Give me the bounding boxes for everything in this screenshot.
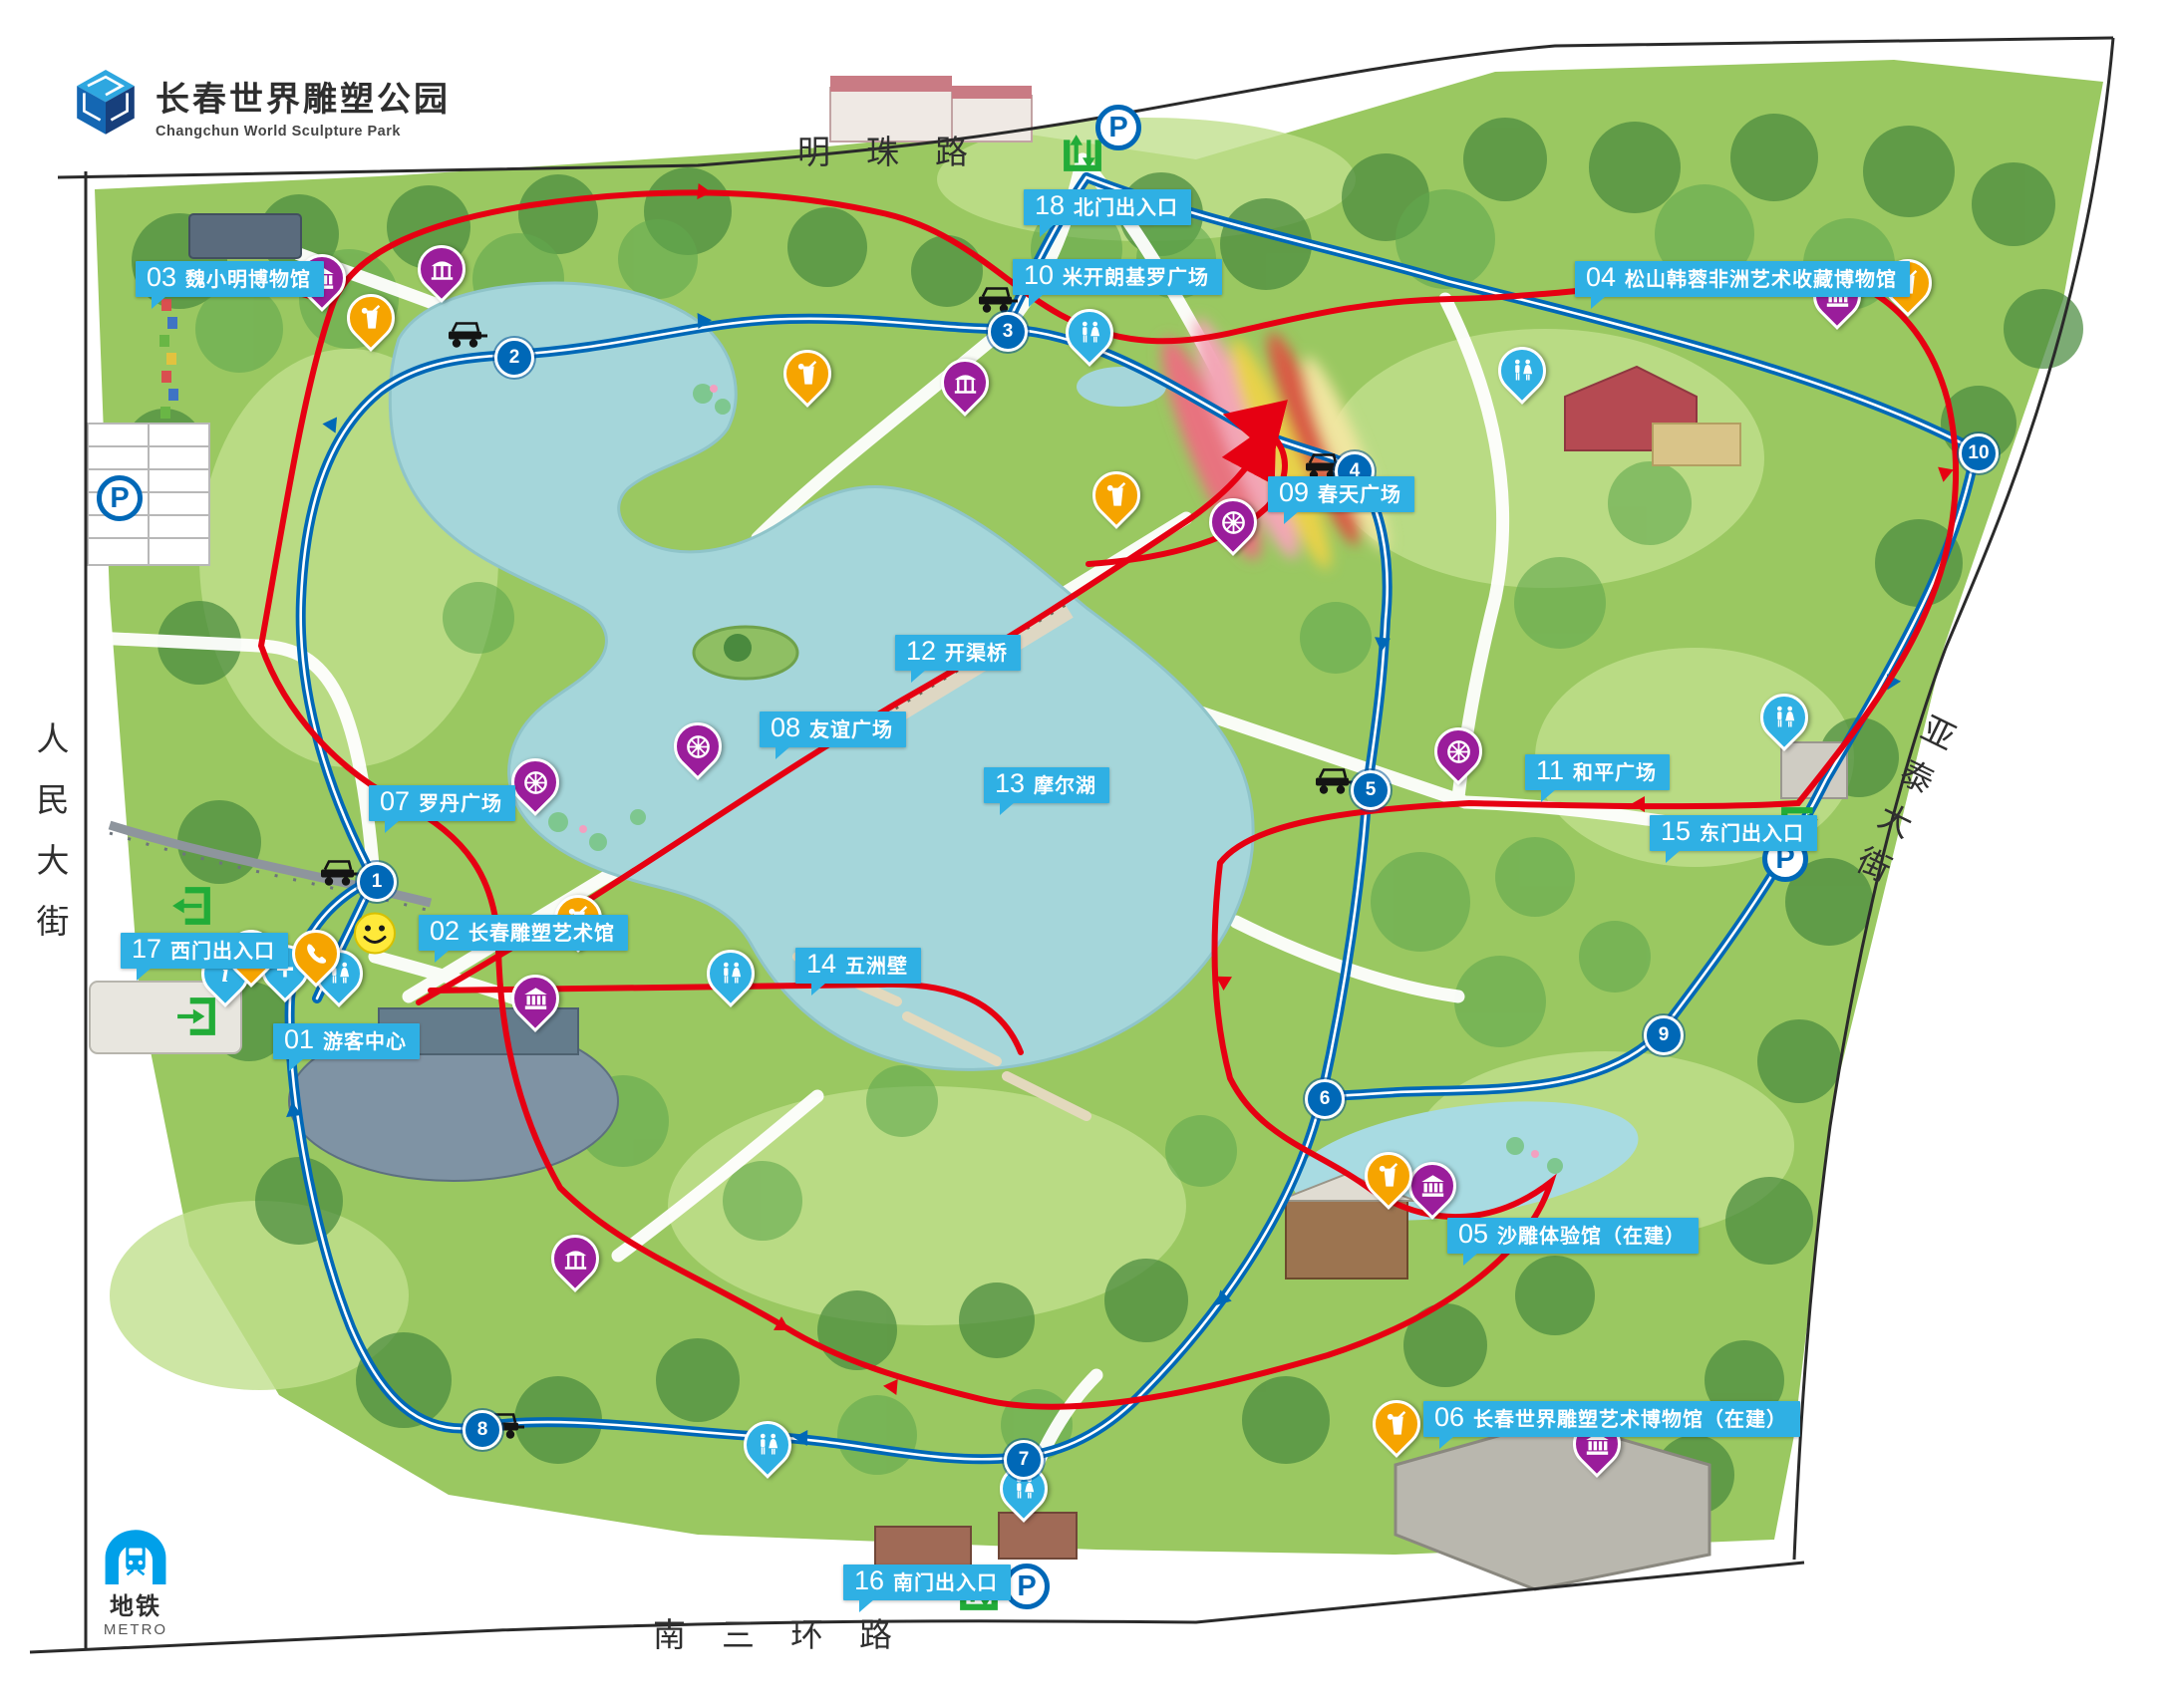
label-tail [1463,1253,1478,1266]
location-name: 西门出入口 [170,935,275,964]
shuttle-cart-icon [444,321,489,354]
pin-body [337,284,405,352]
toilet-icon [710,953,752,995]
location-number: 05 [1458,1220,1488,1248]
location-number: 17 [132,935,161,963]
pin-body [1083,461,1150,529]
road-label-renmin: 人民大街 [26,721,74,965]
park-logo: 长春世界雕塑公园 Changchun World Sculpture Park [70,66,451,145]
location-number: 18 [1035,191,1065,219]
shuttle-stop-5[interactable]: 5 [1351,770,1391,810]
pin-body [1199,488,1267,556]
sculpture-icon [677,725,719,767]
location-name: 春天广场 [1318,478,1401,507]
location-label-07[interactable]: 07罗丹广场 [369,785,515,821]
location-number: 04 [1586,263,1616,291]
location-number: 08 [771,713,800,741]
label-tail [1439,1436,1454,1449]
location-number: 06 [1434,1403,1464,1431]
shuttle-stop-2[interactable]: 2 [494,338,534,378]
shuttle-stop-6[interactable]: 6 [1305,1079,1345,1119]
pin-body [1488,337,1556,405]
location-name: 五洲壁 [845,950,908,979]
toilet-icon [1763,697,1805,738]
location-name: 沙雕体验馆（在建） [1497,1220,1686,1249]
label-tail [1029,294,1044,307]
logo-title-en: Changchun World Sculpture Park [155,124,451,140]
location-label-02[interactable]: 02长春雕塑艺术馆 [419,915,628,951]
location-label-14[interactable]: 14五洲壁 [795,948,921,984]
pin-body [697,940,765,1007]
location-number: 09 [1279,478,1309,506]
location-number: 02 [430,917,460,945]
label-tail [1040,224,1055,237]
location-label-10[interactable]: 10米开朗基罗广场 [1013,259,1222,295]
location-name: 东门出入口 [1700,817,1804,846]
shuttle-stop-9[interactable]: 9 [1644,1015,1684,1055]
label-tail [435,950,450,963]
drink-icon [1095,474,1137,516]
drink-icon [350,297,392,339]
label-tail [1541,789,1556,802]
location-label-08[interactable]: 08友谊广场 [760,712,906,747]
location-name: 米开朗基罗广场 [1063,261,1209,290]
location-label-12[interactable]: 12开渠桥 [895,635,1021,671]
gate-exit-left-icon[interactable] [170,885,212,927]
label-tail [385,820,400,833]
toilet-icon [1501,350,1543,392]
smiley-face-icon [353,912,397,961]
label-tail [1000,802,1015,815]
location-number: 11 [1536,756,1564,784]
location-label-15[interactable]: 15东门出入口 [1650,815,1817,851]
pin-body [408,235,475,303]
pavilion-icon [421,248,463,290]
label-tail [1284,511,1299,524]
logo-title-zh: 长春世界雕塑公园 [155,72,451,121]
location-number: 07 [380,787,410,815]
sculpture-icon [514,761,556,803]
shuttle-stop-1[interactable]: 1 [357,862,397,902]
pin-body [501,965,569,1032]
drink-icon [786,353,828,395]
pavilion-icon [554,1238,596,1280]
location-number: 16 [854,1566,884,1594]
location-name: 北门出入口 [1074,191,1178,220]
label-tail [137,968,152,981]
location-number: 14 [806,950,836,978]
drink-icon [1376,1403,1417,1445]
pavilion-icon [944,362,986,404]
label-tail [911,670,926,683]
parking-icon[interactable]: P [1095,105,1141,150]
metro-label-zh: 地铁 [88,1586,183,1621]
location-number: 10 [1024,261,1054,289]
shuttle-cart-icon [1311,767,1357,800]
location-name: 摩尔湖 [1034,769,1096,798]
toilet-icon [747,1424,788,1466]
toilet-icon [1069,312,1110,354]
metro-label-en: METRO [88,1621,183,1638]
location-label-09[interactable]: 09春天广场 [1268,476,1414,512]
pin-body [1750,684,1818,751]
label-tail [859,1599,874,1612]
metro-station-badge: 地铁 METRO [88,1529,183,1638]
location-label-01[interactable]: 01游客中心 [273,1023,420,1059]
location-name: 长春世界雕塑艺术博物馆（在建） [1473,1403,1787,1432]
shuttle-stop-7[interactable]: 7 [1004,1440,1044,1480]
phone-icon [295,933,337,975]
road-label-nansanhuan: 南三环路 [653,1608,928,1656]
location-label-11[interactable]: 11和平广场 [1525,754,1670,790]
pin-body [541,1225,609,1292]
shuttle-stop-8[interactable]: 8 [463,1410,502,1450]
label-tail [1666,850,1681,863]
location-name: 魏小明博物馆 [185,263,311,292]
location-label-17[interactable]: 17西门出入口 [121,933,288,969]
museum-icon [514,978,556,1019]
location-name: 南门出入口 [893,1566,998,1595]
location-number: 03 [147,263,176,291]
metro-icon [103,1529,168,1584]
location-name: 松山韩蓉非洲艺术收藏博物馆 [1625,263,1897,292]
drink-icon [1368,1155,1409,1197]
location-label-06[interactable]: 06长春世界雕塑艺术博物馆（在建） [1423,1401,1800,1437]
label-tail [811,983,826,996]
location-label-18[interactable]: 18北门出入口 [1024,189,1191,225]
location-name: 开渠桥 [945,637,1008,666]
pin-body [664,712,732,780]
pin-body [774,340,841,408]
location-label-05[interactable]: 05沙雕体验馆（在建） [1447,1218,1699,1254]
shuttle-cart-icon [316,859,362,892]
shuttle-stop-3[interactable]: 3 [988,312,1028,352]
pin-body [1424,717,1492,785]
museum-icon [1411,1165,1453,1207]
gate-enter-right-icon[interactable] [175,996,217,1037]
location-label-03[interactable]: 03魏小明博物馆 [136,261,324,297]
label-tail [289,1058,304,1071]
location-label-04[interactable]: 04松山韩蓉非洲艺术收藏博物馆 [1575,261,1910,297]
pin-body [931,349,999,417]
location-number: 15 [1661,817,1691,845]
label-tail [1591,296,1606,309]
label-tail [152,296,166,309]
pin-body [1056,299,1123,367]
location-number: 01 [284,1025,314,1053]
road-label-mingzhu: 明珠路 [797,126,1004,173]
park-map: 长春世界雕塑公园 Changchun World Sculpture Park … [0,0,2172,1708]
sculpture-icon [1212,501,1254,543]
pin-body [734,1411,801,1479]
location-number: 13 [995,769,1025,797]
marker-overlay: 01游客中心02长春雕塑艺术馆03魏小明博物馆04松山韩蓉非洲艺术收藏博物馆05… [0,0,2172,1708]
location-name: 游客中心 [323,1025,407,1054]
location-label-16[interactable]: 16南门出入口 [843,1565,1011,1600]
sculpture-icon [1437,730,1479,772]
parking-icon[interactable]: P [97,475,143,521]
location-number: 12 [906,637,936,665]
location-name: 友谊广场 [809,713,893,742]
logo-cube-icon [70,66,142,145]
location-label-13[interactable]: 13摩尔湖 [984,767,1109,803]
location-name: 长春雕塑艺术馆 [468,917,615,946]
shuttle-stop-10[interactable]: 10 [1959,433,1999,473]
location-name: 和平广场 [1573,756,1657,785]
location-name: 罗丹广场 [419,787,502,816]
pin-body [1363,1390,1430,1458]
label-tail [776,746,790,759]
